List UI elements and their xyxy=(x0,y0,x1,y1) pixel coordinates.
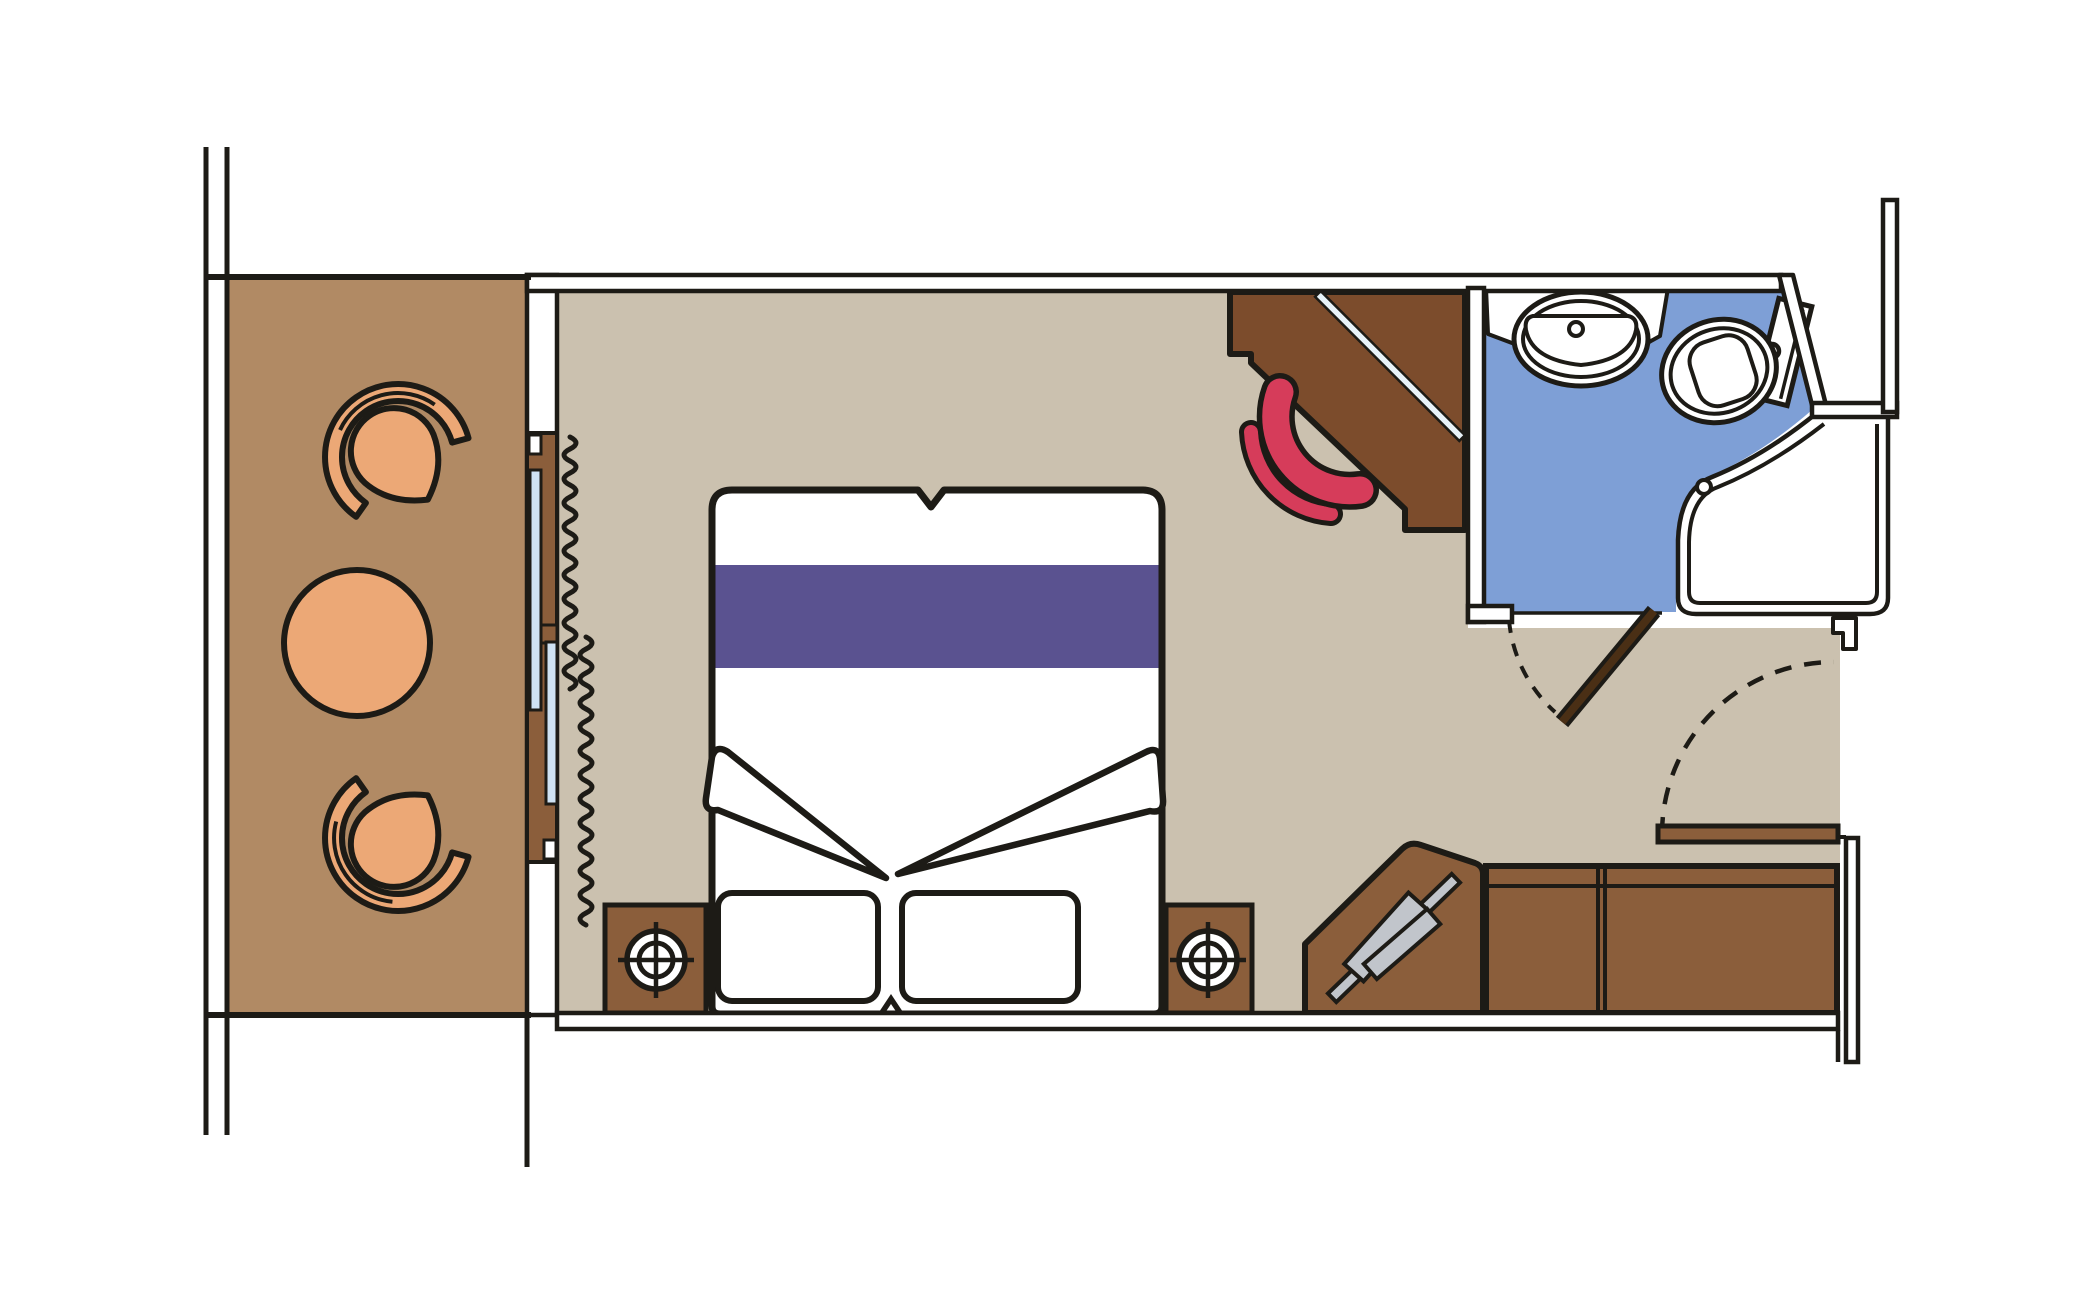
floor-plan-page xyxy=(0,0,2100,1299)
sliding-door-glass-upper xyxy=(530,470,541,710)
pillow-right xyxy=(902,893,1078,1001)
balcony xyxy=(227,277,527,1015)
pillow-left xyxy=(718,893,878,1001)
sink xyxy=(1514,292,1648,386)
wall-bottom xyxy=(557,1013,1838,1029)
wall-bathroom-left xyxy=(1468,288,1484,622)
entry-door-leaf xyxy=(1658,826,1838,842)
duvet-runner xyxy=(715,565,1159,668)
nightstand-left xyxy=(605,905,706,1013)
wall-right-upper xyxy=(1883,200,1897,412)
wall-top xyxy=(527,275,1781,291)
shower-handle xyxy=(1697,480,1711,494)
floor-plan-figure xyxy=(0,0,2100,1299)
nightstand-right xyxy=(1166,905,1252,1013)
window-wall xyxy=(527,275,557,1015)
wall-bathroom-bottom xyxy=(1468,606,1512,622)
frame-notch-top xyxy=(529,435,541,454)
bed xyxy=(706,490,1163,1014)
wall-right-lower xyxy=(1846,838,1858,1062)
wardrobe-straight xyxy=(1486,866,1837,1013)
frame-notch-bottom xyxy=(544,840,556,859)
sink-faucet xyxy=(1569,322,1583,336)
desk-area xyxy=(1230,291,1465,530)
sliding-door-glass-lower xyxy=(546,642,557,804)
balcony-table xyxy=(284,570,430,716)
wardrobe xyxy=(1305,844,1837,1013)
